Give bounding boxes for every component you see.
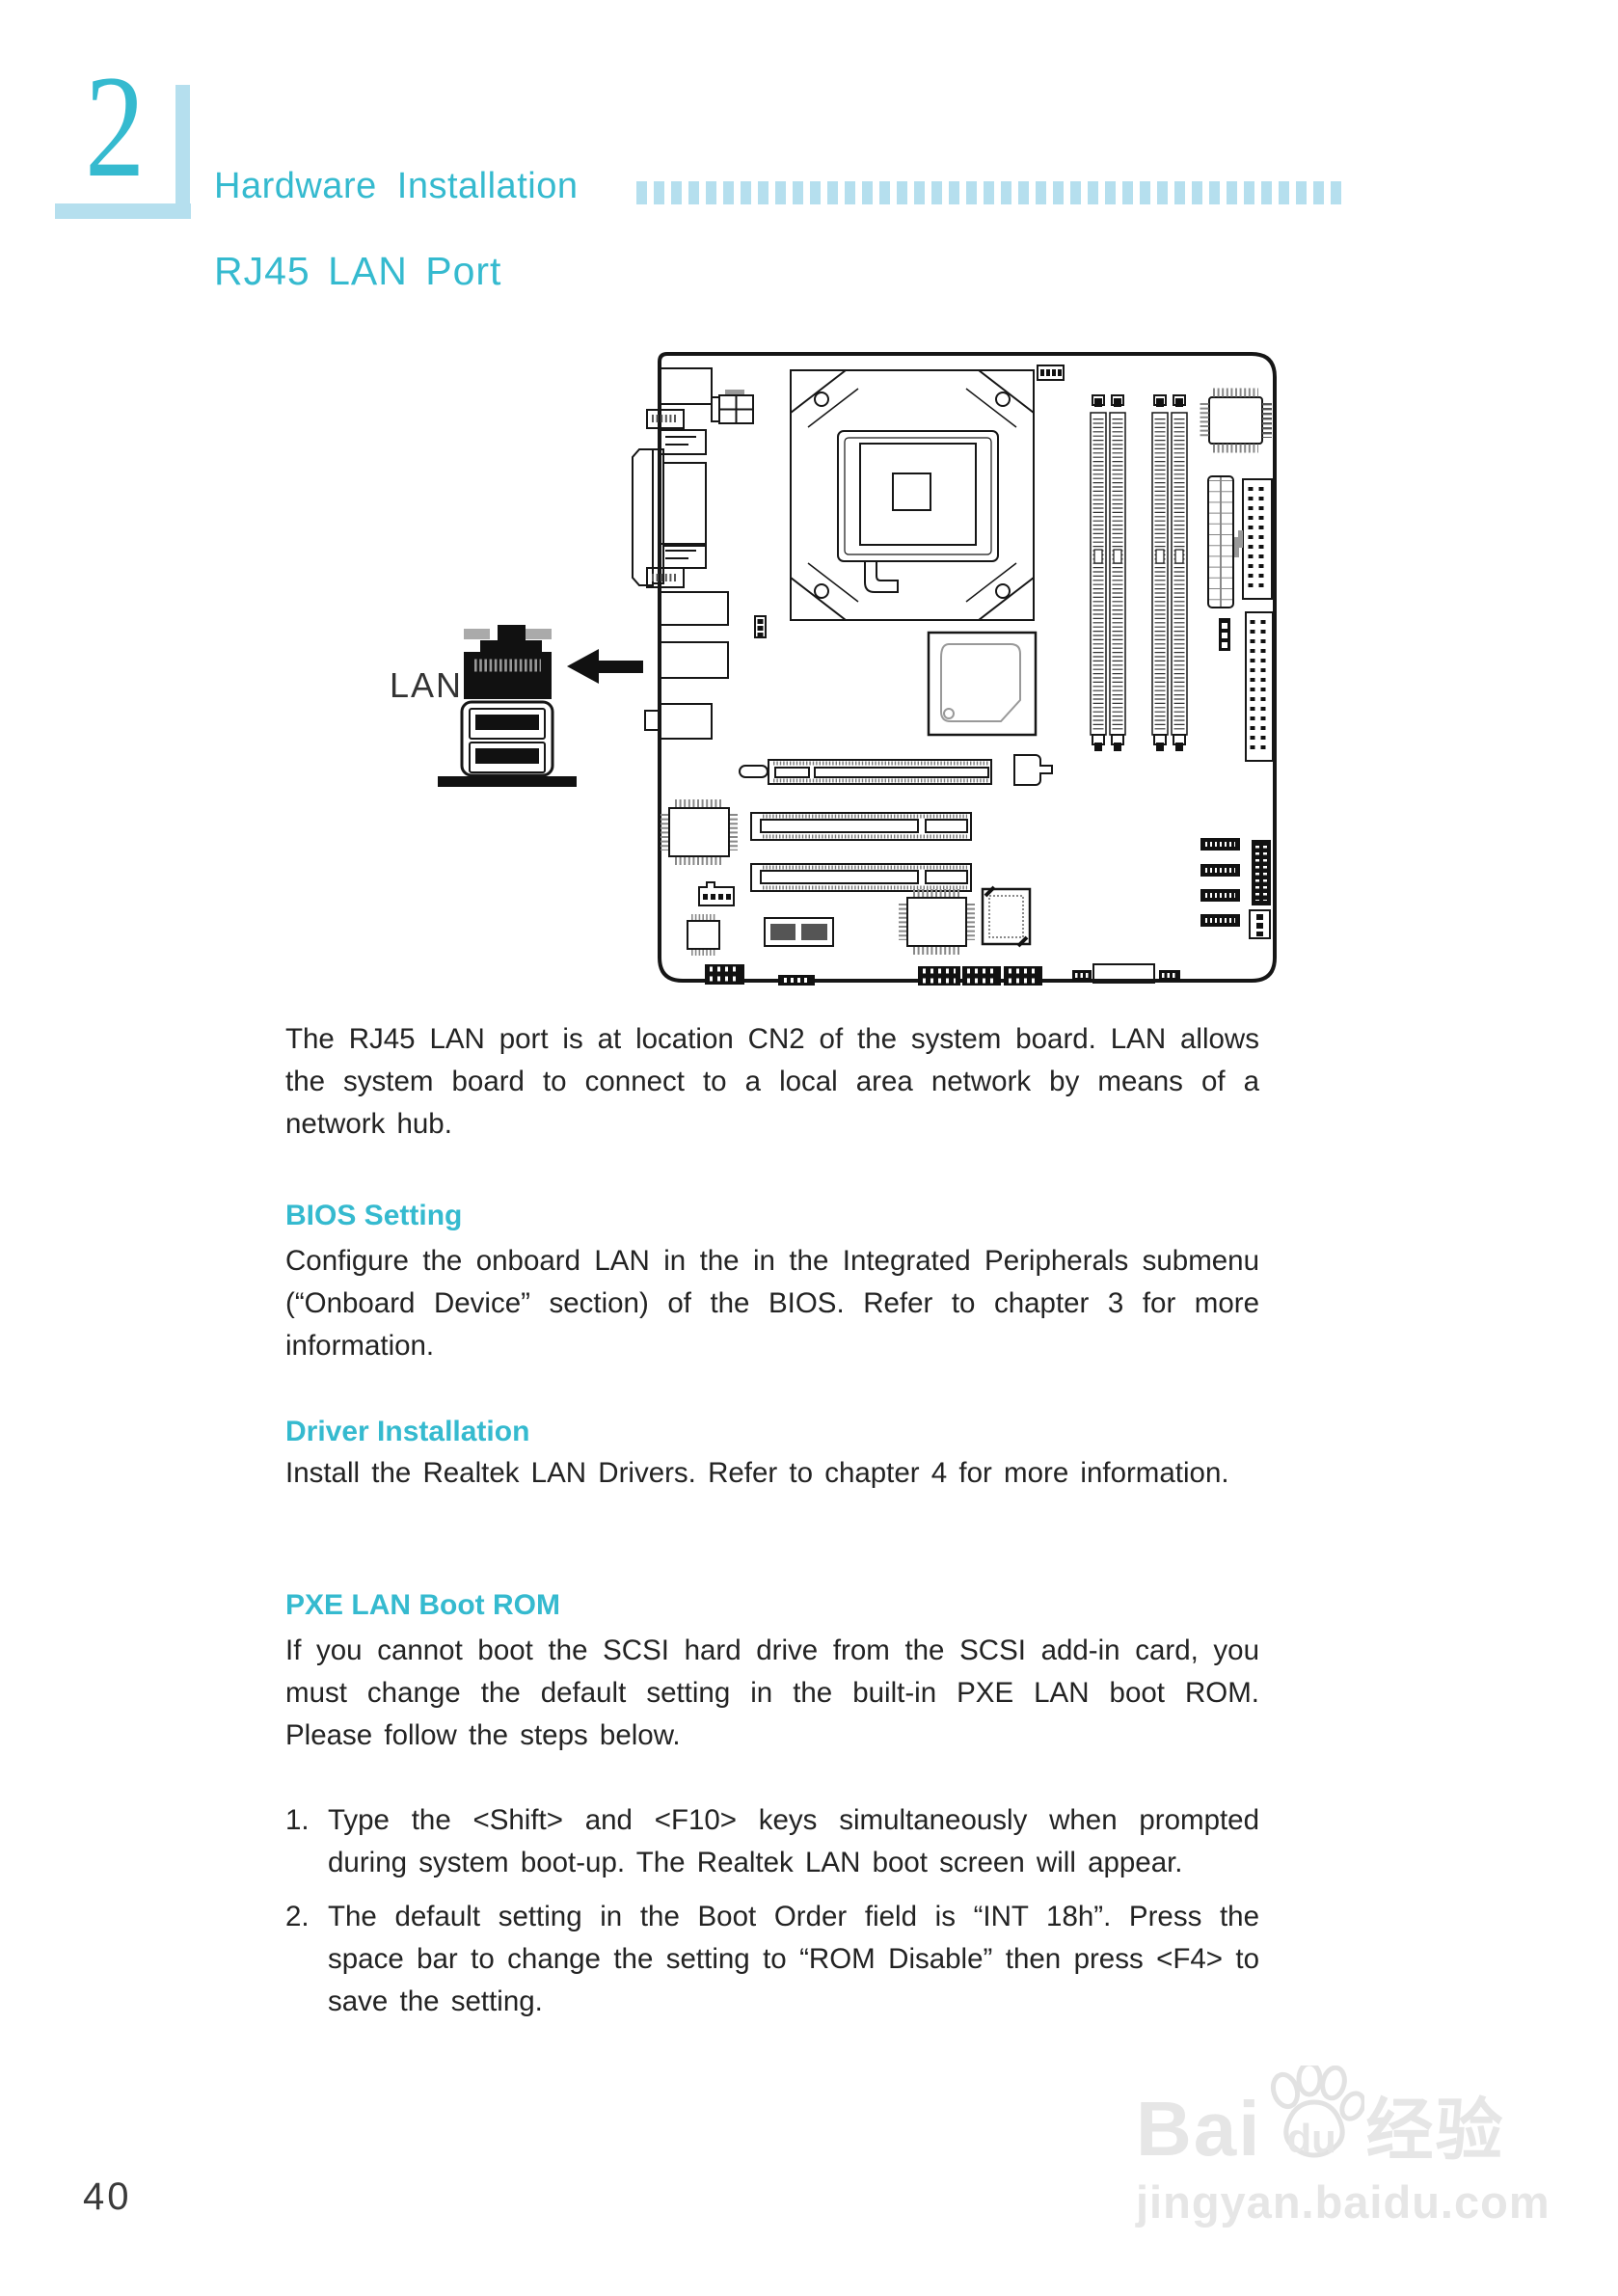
header-dot: [949, 181, 959, 204]
watermark: Bai du 经验 jingyan.baidu.com: [1136, 2066, 1608, 2228]
header-dot: [1244, 181, 1254, 204]
steps-list: 1. Type the <Shift> and <F10> keys simul…: [285, 1799, 1259, 2023]
header-dot: [1157, 181, 1168, 204]
heading-pxe-lan-boot-rom: PXE LAN Boot ROM: [285, 1589, 560, 1622]
header-dot: [1261, 181, 1272, 204]
header-dot: [810, 181, 821, 204]
io-controller-chip: [1204, 392, 1267, 448]
jumpers-and-headers: [755, 365, 1064, 637]
watermark-url: jingyan.baidu.com: [1136, 2175, 1608, 2228]
step-item: 1. Type the <Shift> and <F10> keys simul…: [285, 1799, 1259, 1884]
header-dot: [1105, 181, 1116, 204]
page-title: RJ45 LAN Port: [214, 249, 501, 294]
northbridge-chip: [929, 633, 1036, 735]
header-dot: [1070, 181, 1081, 204]
header-dot: [1192, 181, 1202, 204]
rj45-port-icon: [464, 625, 552, 699]
heading-driver-installation: Driver Installation: [285, 1416, 529, 1448]
header-dot: [636, 181, 647, 204]
heading-bios-setting: BIOS Setting: [285, 1200, 462, 1232]
usb-ports-icon: [438, 702, 577, 787]
header-dot: [1296, 181, 1307, 204]
pci-slots: [751, 813, 971, 891]
chapter-shadow-vertical: [175, 85, 190, 219]
header-dot: [775, 181, 786, 204]
header-dot: [1122, 181, 1133, 204]
header-dot: [1331, 181, 1341, 204]
page-number: 40: [83, 2175, 132, 2219]
header-dot: [845, 181, 855, 204]
header-dot: [862, 181, 873, 204]
watermark-brand-right: 经验: [1366, 2093, 1505, 2168]
header-dot: [914, 181, 925, 204]
header-dot: [879, 181, 890, 204]
header-dot: [984, 181, 994, 204]
header-dot: [706, 181, 716, 204]
header-dot: [1174, 181, 1185, 204]
baidu-paw-icon: du: [1264, 2066, 1364, 2174]
motherboard-diagram: LAN: [381, 318, 1292, 993]
watermark-brand: Bai du 经验: [1136, 2066, 1608, 2168]
header-dot: [1209, 181, 1220, 204]
step-text: Type the <Shift> and <F10> keys simultan…: [328, 1799, 1259, 1884]
header-dot: [671, 181, 682, 204]
header-dot: [1001, 181, 1011, 204]
header-dot: [688, 181, 699, 204]
header-dot: [1227, 181, 1237, 204]
header-dot: [966, 181, 977, 204]
step-number: 1.: [285, 1799, 328, 1884]
header-dot: [1313, 181, 1324, 204]
dimm-slots: [1091, 395, 1187, 751]
lan-callout: LAN: [390, 625, 643, 787]
ide-connectors: [1219, 479, 1273, 761]
header-dot: [1036, 181, 1046, 204]
header-dot: [1053, 181, 1064, 204]
header-dot: [1088, 181, 1098, 204]
chapter-number: 2: [85, 54, 145, 199]
header-dot: [1018, 181, 1029, 204]
step-item: 2. The default setting in the Boot Order…: [285, 1896, 1259, 2023]
manual-page: 2 Hardware Installation RJ45 LAN Port: [0, 0, 1618, 2296]
header-dot: [741, 181, 751, 204]
lan-arrow-icon: [567, 649, 643, 684]
agp-slot: [740, 755, 1052, 785]
header-dot: [1140, 181, 1150, 204]
watermark-brand-left: Bai: [1136, 2091, 1262, 2168]
header-dot: [1279, 181, 1289, 204]
header-dot: [723, 181, 734, 204]
header-title: Hardware Installation: [214, 166, 578, 207]
header-dot: [931, 181, 942, 204]
chapter-badge: 2: [48, 56, 202, 230]
paragraph-pxe-lan-boot-rom: If you cannot boot the SCSI hard drive f…: [285, 1630, 1259, 1757]
atx-power-connector: [1208, 476, 1239, 608]
paragraph-bios-setting: Configure the onboard LAN in the in the …: [285, 1240, 1259, 1367]
step-text: The default setting in the Boot Order fi…: [328, 1896, 1259, 2023]
watermark-brand-paw-text: du: [1287, 2116, 1336, 2162]
header-dot: [758, 181, 769, 204]
step-number: 2.: [285, 1896, 328, 2023]
header-dot: [793, 181, 803, 204]
header-dots: [636, 181, 1341, 204]
lan-label: LAN: [390, 665, 463, 705]
header-dot: [897, 181, 907, 204]
intro-paragraph: The RJ45 LAN port is at location CN2 of …: [285, 1018, 1259, 1146]
io-ports: [633, 368, 753, 739]
header-dot: [827, 181, 838, 204]
header-dot: [654, 181, 664, 204]
paragraph-driver-installation: Install the Realtek LAN Drivers. Refer t…: [285, 1452, 1259, 1495]
cpu-socket: [791, 370, 1034, 620]
